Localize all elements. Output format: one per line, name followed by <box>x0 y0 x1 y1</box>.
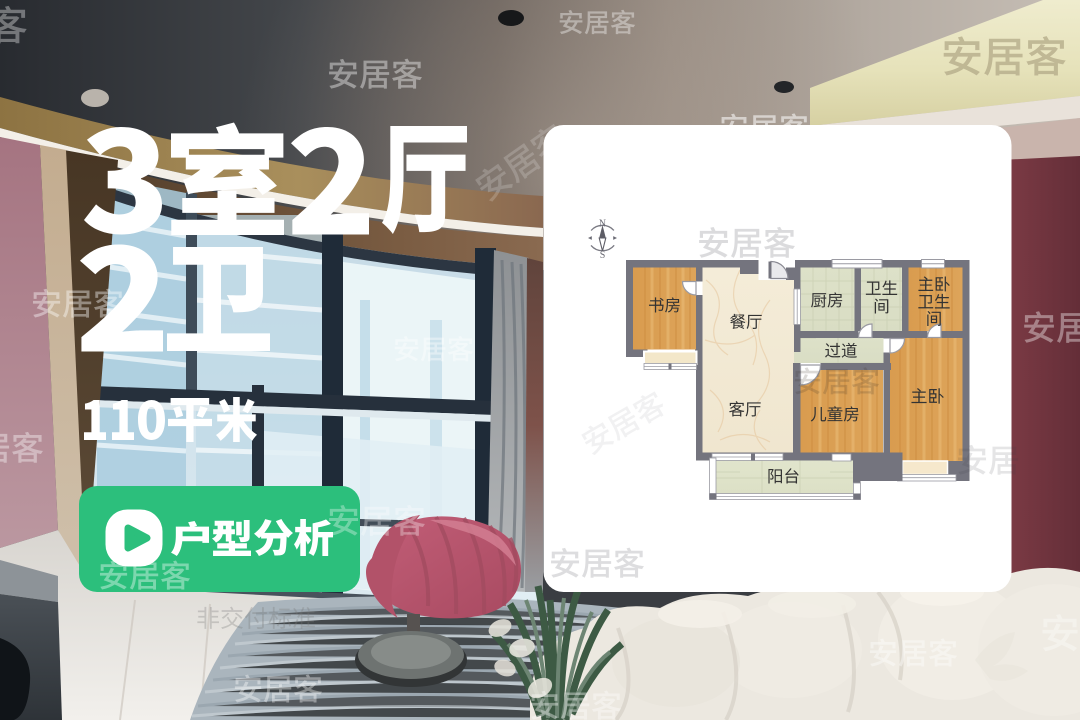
svg-text:S: S <box>600 250 606 261</box>
svg-text:N: N <box>599 219 606 230</box>
